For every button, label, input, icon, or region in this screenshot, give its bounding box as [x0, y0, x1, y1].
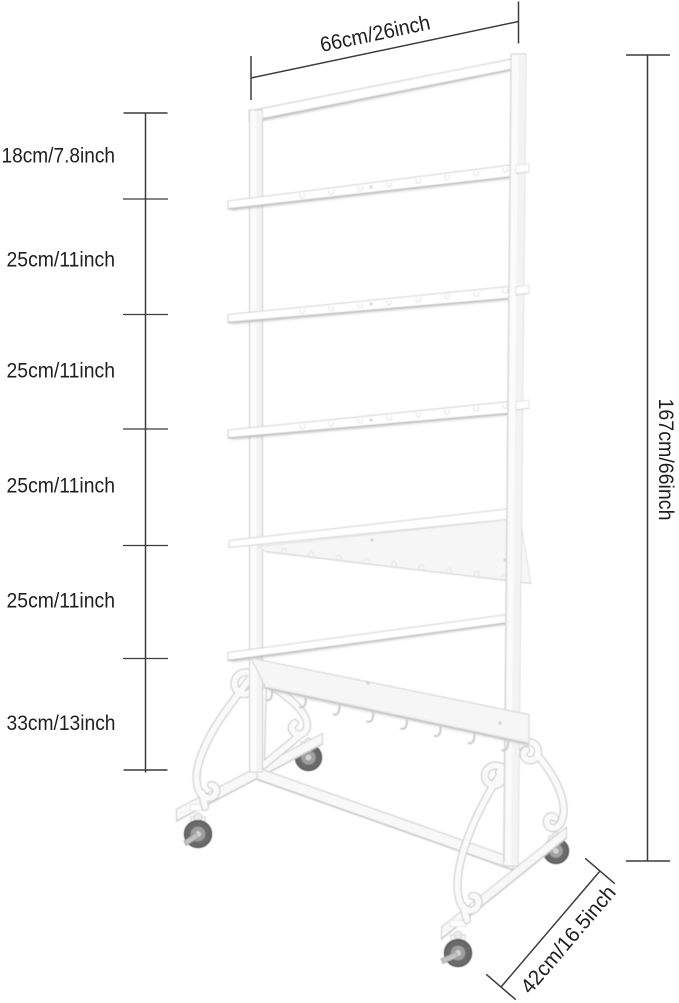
- svg-text:25cm/11inch: 25cm/11inch: [7, 475, 116, 498]
- svg-text:25cm/11inch: 25cm/11inch: [7, 249, 116, 272]
- svg-text:25cm/11inch: 25cm/11inch: [7, 590, 116, 613]
- svg-text:18cm/7.8inch: 18cm/7.8inch: [2, 145, 116, 168]
- svg-text:33cm/13inch: 33cm/13inch: [7, 712, 116, 735]
- svg-text:25cm/11inch: 25cm/11inch: [7, 360, 116, 383]
- svg-text:167cm/66inch: 167cm/66inch: [654, 399, 677, 521]
